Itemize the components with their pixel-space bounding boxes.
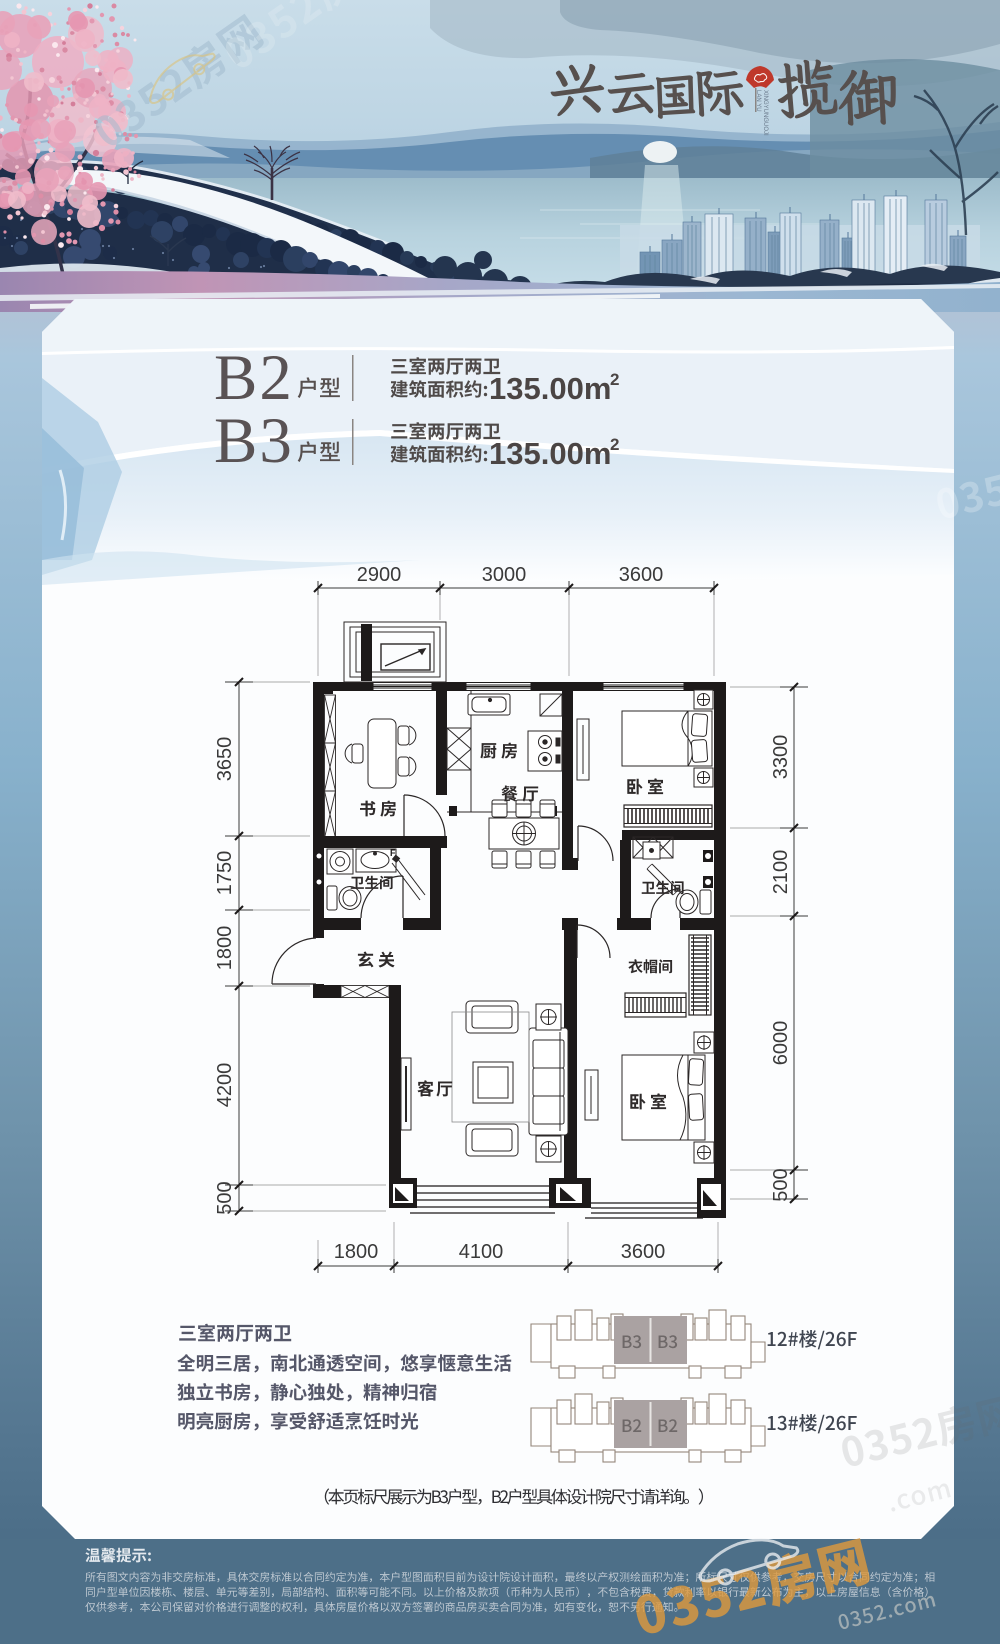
svg-text:500: 500 — [214, 1181, 236, 1214]
svg-text:3600: 3600 — [621, 1241, 666, 1263]
svg-text:6000: 6000 — [770, 1021, 792, 1066]
svg-text:XINGYUNGUOJI: XINGYUNGUOJI — [762, 90, 768, 136]
svg-text:3600: 3600 — [619, 564, 664, 586]
svg-text:1800: 1800 — [334, 1241, 379, 1263]
svg-text:4200: 4200 — [214, 1063, 236, 1108]
svg-text:F: F — [390, 848, 396, 858]
svg-text:1800: 1800 — [214, 926, 236, 971]
svg-text:2900: 2900 — [357, 564, 402, 586]
svg-text:3650: 3650 — [214, 737, 236, 782]
svg-text:4100: 4100 — [459, 1241, 504, 1263]
svg-text:135.00m: 135.00m — [489, 436, 611, 471]
svg-text:3000: 3000 — [482, 564, 527, 586]
svg-text:500: 500 — [770, 1168, 792, 1201]
svg-text:2100: 2100 — [770, 850, 792, 895]
svg-text:B2: B2 — [214, 342, 294, 414]
svg-text:2: 2 — [610, 370, 619, 389]
svg-text:3300: 3300 — [770, 735, 792, 780]
svg-text:1750: 1750 — [214, 851, 236, 896]
svg-text:2: 2 — [610, 435, 619, 454]
svg-text:B3: B3 — [214, 405, 294, 477]
svg-text:135.00m: 135.00m — [489, 371, 611, 406]
